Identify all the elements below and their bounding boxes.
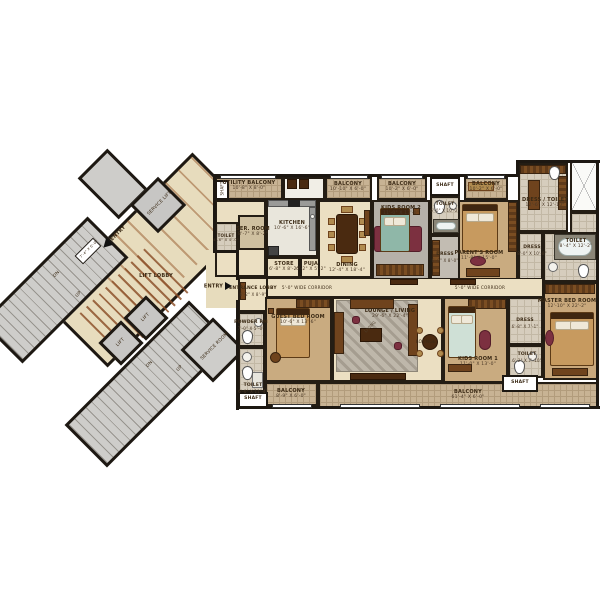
dining-chair	[359, 244, 366, 251]
dining-chair	[328, 244, 335, 251]
toilet-mid-tub	[433, 219, 459, 233]
entry-arrow-right-icon	[225, 284, 232, 290]
toilet-sink-icon	[548, 262, 558, 272]
room-label-balcony-b: BALCONY10'-2" X 6'-0"	[372, 181, 432, 193]
floor-plan: LIFT LOBBY SERVICE LIFT SERVICE ROOM LIF…	[0, 0, 600, 604]
room-label-utility-balcony: UTILITY BALCONY10'-8" X 8'-0"	[219, 180, 279, 192]
parents-bench	[466, 268, 500, 277]
wall-right	[596, 160, 599, 408]
room-label-shaft-br: SHAFT	[500, 380, 540, 386]
room-label-balcony-c: BALCONY10'-2" X 6'-0"	[456, 181, 516, 193]
guest-toilet-sink-icon	[242, 352, 252, 362]
room-label-dress-k1: DRESS6'-8" X 7'-1"	[505, 318, 545, 329]
guest-armchair	[270, 352, 281, 363]
wall-top-right	[518, 160, 600, 163]
duct-box-1	[287, 179, 297, 189]
room-label-dress-right: DRESS8'-0" X 10'-8"	[512, 245, 552, 256]
kids2-wardrobe	[376, 264, 424, 276]
window-utility	[220, 175, 276, 179]
tv-unit	[350, 373, 406, 380]
lounge-label: LOUNGE	[406, 340, 446, 346]
wall-left-step	[213, 250, 238, 253]
toilet-right-upper	[570, 212, 598, 234]
corridor-label-left: 5'-0" WIDE CORRIDOR	[267, 285, 347, 290]
dining-sideboard	[364, 210, 370, 236]
toilet-wc-icon	[578, 264, 589, 278]
room-label-kids-room-2: KIDS ROOM 211'-0" X 13'-0"	[371, 205, 431, 217]
room-label-lounge-living: LOUNGE / LIVING29'-6" X 22'-4"	[360, 308, 420, 320]
parents-bed	[462, 204, 498, 252]
kids1-bed	[448, 306, 476, 358]
toilet-wc-icon	[549, 166, 560, 180]
master-rug	[545, 330, 554, 346]
duct-box-2	[299, 179, 309, 189]
room-label-kitchen: KITCHEN10'-6" X 16'-6"	[262, 220, 322, 232]
dining-table	[336, 214, 358, 254]
master-bench	[552, 368, 588, 376]
room-label-dining: DINING12'-4" X 18'-4"	[317, 262, 377, 274]
room-label-kids-room-1: KIDS ROOM 111'-0" X 13'-0"	[448, 356, 508, 368]
master-wardrobe	[545, 284, 595, 294]
window-balcony-long-2	[440, 404, 520, 408]
kids1-rug	[479, 330, 491, 350]
room-label-toilet-mid: TOILET6'-0" X 10'-2"	[425, 202, 465, 213]
window-balcony-long-1	[340, 404, 420, 408]
kitchen-stove	[288, 200, 300, 207]
window-balcony-long-3	[540, 404, 590, 408]
lounge-cushion	[394, 342, 402, 350]
wall-left-lower-a	[236, 250, 239, 280]
dining-chair	[341, 206, 353, 213]
lounge-chair	[437, 350, 444, 357]
window-balcony-c	[467, 175, 505, 179]
room-label-toilet-right: TOILET8'-4" X 12'-2"	[546, 238, 600, 250]
room-label-balcony-a: BALCONY10'-10" X 6'-0"	[318, 181, 378, 193]
dining-chair	[328, 218, 335, 225]
room-label-master-bed: MASTER BED ROOM12'-10" X 22'-2"	[537, 298, 597, 310]
window-balcony-guest	[272, 404, 312, 408]
window-balcony-a	[330, 175, 368, 179]
kitchen-sink	[310, 214, 315, 219]
room-label-balcony-guest: BALCONY8'-9" X 6'-0"	[261, 388, 321, 400]
room-label-dress-toilet: DRESS / TOILET12'-6" X 12'-10"	[515, 197, 575, 209]
dining-chair	[328, 231, 335, 238]
room-label-toilet-left: TOILET4'-6" X 4'-0"	[206, 233, 246, 243]
guest-wardrobe	[296, 299, 330, 308]
corridor-console-1	[390, 279, 418, 285]
entry-side-label: ENTRY	[196, 282, 240, 290]
corridor-label-right: 5'-0" WIDE CORRIDOR	[440, 285, 520, 290]
room-label-parents-room: PARENT'S ROOM11'-8" X 15'-0"	[449, 250, 509, 262]
lounge-chair	[437, 327, 444, 334]
room-label-guest-bed: GUEST BED ROOM10'-6" X 13'-6"	[268, 314, 328, 326]
kitchen-fridge	[268, 246, 279, 256]
powder-wc-icon	[242, 330, 253, 344]
lounge-chair	[416, 327, 423, 334]
guest-toilet-wc-icon	[242, 366, 253, 380]
room-label-toilet-k1: TOILET6'-2" X 7'-10"	[507, 352, 547, 363]
room-label-shaft-left: SHAFT	[220, 176, 225, 202]
lounge-cushion	[352, 316, 360, 324]
window-balcony-b	[381, 175, 423, 179]
room-label-balcony-long: BALCONY61'-4" X 6'-0"	[438, 389, 498, 401]
sofa-left	[334, 312, 344, 354]
lounge-chair	[416, 350, 423, 357]
room-label-powder: POWDER RM7'-0" X 5'-0"	[231, 320, 271, 331]
wall-step-right	[516, 160, 519, 177]
master-bed	[550, 312, 594, 366]
lift-lobby-label: LIFT LOBBY	[126, 273, 186, 279]
